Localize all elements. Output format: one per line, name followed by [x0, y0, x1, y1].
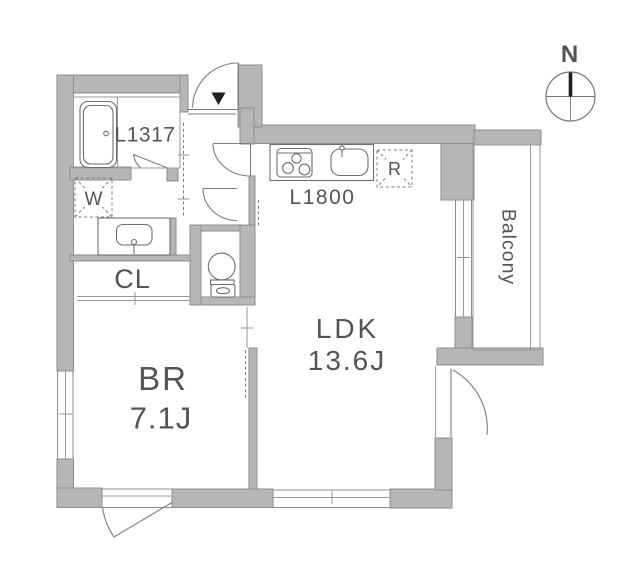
fridge-label: R [388, 159, 401, 179]
floor-plan-svg: Balcony [0, 0, 640, 588]
floor-plan: Balcony [0, 0, 640, 588]
bedroom-window [58, 371, 74, 459]
bedroom-exterior-door [102, 489, 172, 537]
ldk-label: LDK [316, 313, 379, 344]
washer-label: W [85, 189, 103, 210]
bedroom-label: BR [138, 360, 188, 397]
bedroom-size-label: 7.1J [130, 401, 193, 436]
room-labels: BR 7.1J LDK 13.6J [130, 313, 387, 436]
ldk-bottom-window [273, 490, 390, 508]
refrigerator-space: R [377, 150, 412, 187]
hall-kitchen-door [213, 144, 251, 177]
kitchen-unit-label: L1800 [290, 186, 356, 209]
bath-unit-label: L1317 [115, 124, 176, 147]
washbasin [98, 218, 170, 255]
washing-machine-space: W [75, 178, 112, 217]
bathroom: L1317 [74, 97, 181, 168]
entrance-door [188, 63, 239, 114]
bathtub [80, 102, 117, 168]
ldk-size-label: 13.6J [308, 345, 387, 376]
kitchen: L1800 R [270, 145, 412, 210]
toilet-door [203, 189, 237, 221]
toilet [208, 253, 235, 297]
balcony-label: Balcony [498, 209, 520, 285]
ldk-side-door [436, 366, 488, 437]
bathroom-door [134, 155, 168, 169]
balcony-window [456, 200, 472, 317]
washroom: W [75, 178, 170, 255]
compass: N [546, 41, 595, 121]
balcony: Balcony [473, 145, 540, 350]
north-label: N [561, 41, 578, 68]
closet-label: CL [114, 264, 151, 294]
closet: CL [77, 264, 190, 305]
entrance-marker-triangle [212, 93, 226, 106]
